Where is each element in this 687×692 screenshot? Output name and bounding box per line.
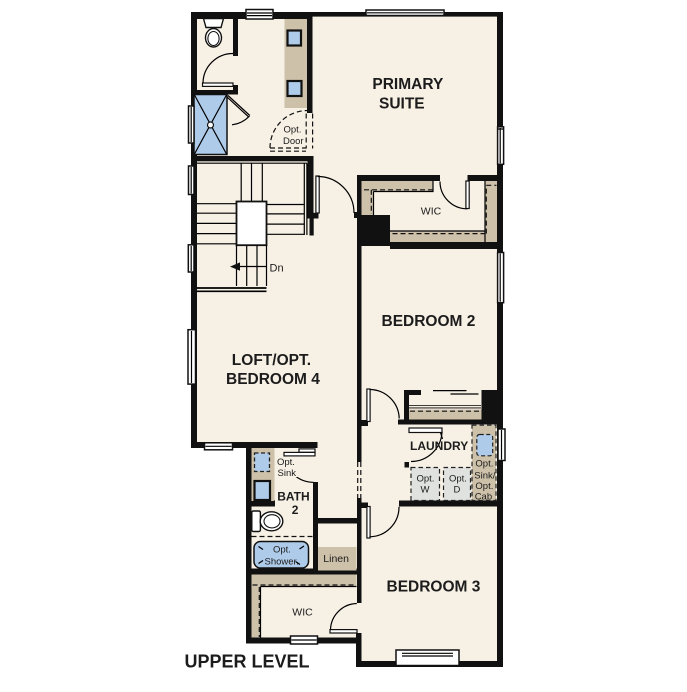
svg-text:Cab: Cab — [475, 491, 492, 502]
svg-text:Sink: Sink — [278, 468, 297, 479]
svg-text:BEDROOM 2: BEDROOM 2 — [382, 313, 476, 330]
svg-text:SUITE: SUITE — [379, 95, 425, 112]
svg-text:LOFT/OPT.: LOFT/OPT. — [232, 352, 311, 369]
svg-text:Opt.: Opt. — [417, 474, 435, 485]
svg-text:Opt.: Opt. — [277, 457, 295, 468]
svg-text:Opt.: Opt. — [273, 545, 291, 556]
svg-text:BEDROOM 3: BEDROOM 3 — [387, 578, 481, 595]
svg-text:Sink/: Sink/ — [474, 470, 495, 481]
svg-text:Opt.: Opt. — [475, 481, 493, 492]
svg-text:BEDROOM 4: BEDROOM 4 — [226, 371, 320, 388]
svg-text:WIC: WIC — [421, 205, 442, 217]
svg-text:UPPER LEVEL: UPPER LEVEL — [185, 651, 310, 671]
svg-text:Opt.: Opt. — [475, 458, 493, 469]
svg-text:Linen: Linen — [323, 553, 349, 565]
svg-text:Door: Door — [283, 136, 304, 147]
svg-text:2: 2 — [292, 503, 299, 517]
svg-text:Opt.: Opt. — [449, 474, 467, 485]
svg-text:LAUNDRY: LAUNDRY — [410, 439, 468, 453]
svg-text:D: D — [454, 485, 461, 496]
svg-text:Shower.: Shower. — [265, 557, 299, 568]
svg-text:Dn: Dn — [270, 262, 284, 274]
svg-text:WIC: WIC — [292, 607, 313, 619]
svg-text:BATH: BATH — [277, 490, 309, 504]
svg-text:W: W — [421, 485, 430, 496]
svg-text:PRIMARY: PRIMARY — [372, 76, 444, 93]
svg-text:Opt.: Opt. — [284, 124, 302, 135]
